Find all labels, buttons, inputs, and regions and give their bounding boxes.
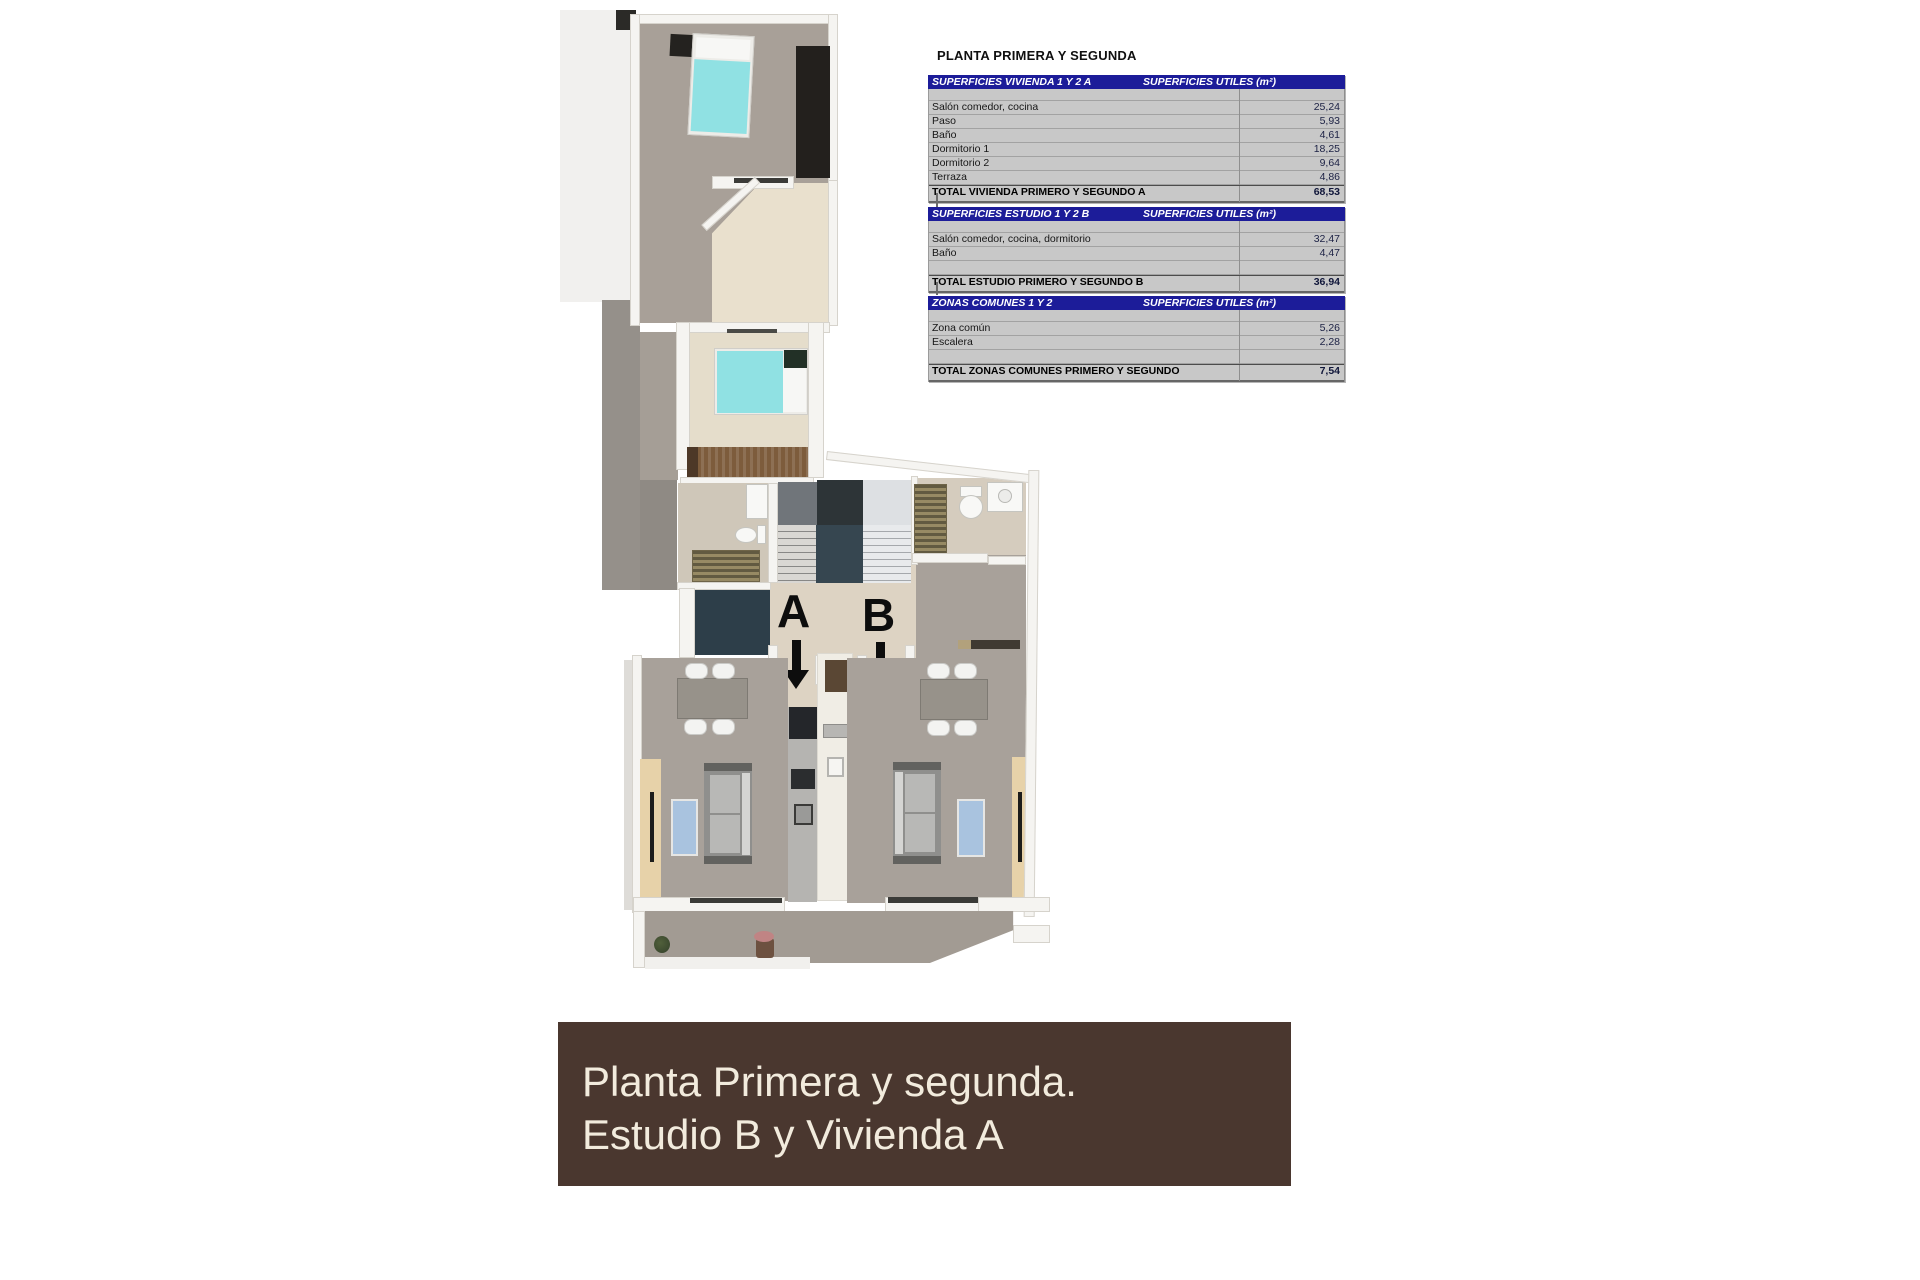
table-estudio: SUPERFICIES ESTUDIO 1 Y 2 B SUPERFICIES …	[928, 207, 1345, 293]
table-vivienda-body: Salón comedor, cocina25,24 Paso5,93 Baño…	[928, 89, 1345, 203]
row-value: 4,86	[1320, 171, 1340, 183]
rug-b	[957, 799, 985, 857]
row-label: Baño	[932, 129, 957, 141]
table-row-spacer	[929, 310, 1344, 322]
bedroom1-wall-left	[630, 14, 640, 326]
sofa-a-back	[742, 773, 750, 855]
total-value: 7,54	[1320, 365, 1340, 377]
bed2-duvet	[717, 351, 783, 413]
toilet-a-icon	[735, 527, 757, 543]
row-value: 25,24	[1314, 101, 1340, 113]
row-label: Salón comedor, cocina, dormitorio	[932, 233, 1091, 245]
sofa-b-cushion	[905, 814, 935, 852]
wall-shelf-end	[958, 640, 971, 649]
sofa-b	[893, 762, 941, 864]
terrace-wall-right	[828, 180, 838, 326]
kitchen-hob-panel	[823, 724, 848, 738]
chair-icon	[685, 663, 708, 679]
bathroomB-wall-bottom	[912, 553, 988, 563]
table-total-row: TOTAL ZONAS COMUNES PRIMERO Y SEGUNDO7,5…	[929, 364, 1344, 382]
chair-icon	[954, 663, 977, 679]
lightwell-lower	[640, 480, 677, 590]
table-zonas: ZONAS COMUNES 1 Y 2 SUPERFICIES UTILES (…	[928, 296, 1345, 382]
caption-banner: Planta Primera y segunda. Estudio B y Vi…	[558, 1022, 1291, 1186]
row-label: Dormitorio 1	[932, 143, 989, 155]
table-vivienda-header-left: SUPERFICIES VIVIENDA 1 Y 2 A	[932, 76, 1091, 88]
table-row: Baño4,61	[929, 129, 1344, 143]
bed2-headboard	[784, 350, 807, 368]
cooktop-icon	[791, 769, 815, 789]
exterior-wall-right	[1024, 470, 1040, 917]
table-total-row: TOTAL VIVIENDA PRIMERO Y SEGUNDO A68,53	[929, 185, 1344, 203]
bedroom2-wardrobe-end	[687, 447, 698, 477]
row-value: 9,64	[1320, 157, 1340, 169]
row-value: 2,28	[1320, 336, 1340, 348]
sliding-door-a-frame	[690, 898, 782, 903]
table-estudio-body: Salón comedor, cocina, dormitorio32,47 B…	[928, 221, 1345, 293]
chair-icon	[927, 720, 950, 736]
row-value: 18,25	[1314, 143, 1340, 155]
table-vivienda: SUPERFICIES VIVIENDA 1 Y 2 A SUPERFICIES…	[928, 75, 1345, 203]
kitchen-range	[789, 707, 817, 739]
chair-icon	[954, 720, 977, 736]
table-zonas-header: ZONAS COMUNES 1 Y 2 SUPERFICIES UTILES (…	[928, 296, 1345, 310]
sofa-a-cushion	[710, 775, 740, 813]
row-label: Zona común	[932, 322, 990, 334]
table-row: Dormitorio 29,64	[929, 157, 1344, 171]
table-row-spacer	[929, 89, 1344, 101]
sofa-b-armrest	[893, 762, 941, 770]
row-value: 5,93	[1320, 115, 1340, 127]
row-value: 5,26	[1320, 322, 1340, 334]
page-canvas: A B	[0, 0, 1920, 1280]
stairwell-slate-block	[816, 525, 863, 583]
render-background-shade	[560, 10, 632, 302]
island-sink-icon	[827, 757, 844, 777]
shower-wall-left	[679, 588, 695, 658]
unit-b-label: B	[862, 592, 895, 638]
terrace-edge-band	[645, 957, 810, 969]
table-zonas-header-right: SUPERFICIES UTILES (m²)	[1143, 296, 1276, 310]
row-value: 32,47	[1314, 233, 1340, 245]
wall-bottom-right	[978, 897, 1050, 912]
area-tables-sheet: PLANTA PRIMERA Y SEGUNDA SUPERFICIES VIV…	[928, 48, 1345, 388]
flowers-icon	[754, 931, 774, 942]
terrace-wall-left	[633, 911, 645, 968]
stair-flight-left	[778, 525, 817, 583]
table-zonas-body: Zona común5,26 Escalera2,28 TOTAL ZONAS …	[928, 310, 1345, 382]
row-label: Escalera	[932, 336, 973, 348]
toilet-b-icon	[959, 495, 983, 519]
wall-stub-right	[988, 556, 1026, 565]
chair-icon	[684, 719, 707, 735]
sofa-a-armrest	[704, 856, 752, 864]
table-row	[929, 261, 1344, 275]
sofa-a-armrest	[704, 763, 752, 771]
rug-a	[671, 799, 698, 856]
stair-flight-right	[863, 525, 911, 583]
bed1-duvet	[691, 59, 751, 134]
sofa-b-cushion	[905, 774, 935, 812]
unit-a-arrow-shaft	[792, 640, 801, 671]
table-row: Dormitorio 118,25	[929, 143, 1344, 157]
total-value: 36,94	[1314, 276, 1340, 288]
chair-icon	[712, 719, 735, 735]
table-zonas-header-left: ZONAS COMUNES 1 Y 2	[932, 297, 1052, 309]
tv-b-icon	[1018, 792, 1022, 862]
table-row: Salón comedor, cocina25,24	[929, 101, 1344, 115]
chair-icon	[927, 663, 950, 679]
sofa-b-back	[895, 772, 903, 854]
kitchen-sink-icon	[794, 804, 813, 825]
table-row-spacer	[929, 221, 1344, 233]
plant-icon	[654, 936, 670, 953]
table-row: Baño4,47	[929, 247, 1344, 261]
row-label: Dormitorio 2	[932, 157, 989, 169]
stair-landing-left	[778, 482, 817, 525]
cell-connector-line	[936, 193, 938, 207]
bedroom1-bed	[665, 32, 754, 140]
terrace-step-wall	[1013, 925, 1050, 943]
lower-terrace-floor	[645, 911, 1015, 963]
table-estudio-header-right: SUPERFICIES UTILES (m²)	[1143, 207, 1276, 221]
table-vivienda-header: SUPERFICIES VIVIENDA 1 Y 2 A SUPERFICIES…	[928, 75, 1345, 89]
total-label: TOTAL VIVIENDA PRIMERO Y SEGUNDO A	[932, 186, 1146, 198]
table-row: Zona común5,26	[929, 322, 1344, 336]
table-row: Salón comedor, cocina, dormitorio32,47	[929, 233, 1344, 247]
total-label: TOTAL ESTUDIO PRIMERO Y SEGUNDO B	[932, 276, 1143, 288]
row-value: 4,61	[1320, 129, 1340, 141]
table-row: Escalera2,28	[929, 336, 1344, 350]
stairwell-dark-block	[817, 480, 865, 525]
sofa-a	[704, 763, 752, 864]
cell-connector-line	[936, 282, 938, 295]
dining-table-a	[677, 678, 748, 719]
table-vivienda-header-right: SUPERFICIES UTILES (m²)	[1143, 75, 1276, 89]
exterior-wall-band	[602, 300, 640, 590]
bedroom1-wardrobe	[796, 46, 830, 178]
sheet-title: PLANTA PRIMERA Y SEGUNDA	[937, 48, 1137, 63]
table-row: Paso5,93	[929, 115, 1344, 129]
bedroom1-wall-top	[630, 14, 838, 24]
row-value: 4,47	[1320, 247, 1340, 259]
total-value: 68,53	[1314, 186, 1340, 198]
sliding-door-b-frame	[888, 897, 980, 903]
sofa-a-cushion	[710, 815, 740, 853]
stair-landing-right	[863, 480, 911, 525]
banner-line-1: Planta Primera y segunda.	[582, 1055, 1291, 1108]
banner-line-2: Estudio B y Vivienda A	[582, 1108, 1291, 1161]
unit-a-label: A	[777, 588, 810, 634]
table-estudio-header-left: SUPERFICIES ESTUDIO 1 Y 2 B	[932, 208, 1089, 220]
chair-icon	[712, 663, 735, 679]
shower-a-icon	[695, 590, 770, 655]
bedroom2-wall-right	[808, 322, 824, 478]
table-total-row: TOTAL ESTUDIO PRIMERO Y SEGUNDO B36,94	[929, 275, 1344, 293]
sink-a-icon	[746, 484, 768, 519]
table-row: Terraza4,86	[929, 171, 1344, 185]
dining-table-b	[920, 679, 988, 720]
row-label: Terraza	[932, 171, 967, 183]
lightwell-floor	[640, 332, 678, 480]
sink-b-bowl	[998, 489, 1012, 503]
row-label: Salón comedor, cocina	[932, 101, 1038, 113]
bedroom2-wardrobe	[687, 447, 810, 477]
table-estudio-header: SUPERFICIES ESTUDIO 1 Y 2 B SUPERFICIES …	[928, 207, 1345, 221]
row-label: Paso	[932, 115, 956, 127]
bed2-pillows	[783, 367, 806, 412]
toilet-a-tank	[757, 525, 766, 544]
sofa-b-armrest	[893, 856, 941, 864]
total-label: TOTAL ZONAS COMUNES PRIMERO Y SEGUNDO	[932, 365, 1180, 377]
shower-b-icon	[914, 484, 947, 557]
tv-a-icon	[650, 792, 654, 862]
table-row	[929, 350, 1344, 364]
bed1-pillows	[695, 37, 750, 60]
radiator-a-icon	[692, 550, 760, 582]
row-label: Baño	[932, 247, 957, 259]
terrace-door-frame	[734, 178, 788, 183]
stair-wall-left	[768, 483, 778, 583]
